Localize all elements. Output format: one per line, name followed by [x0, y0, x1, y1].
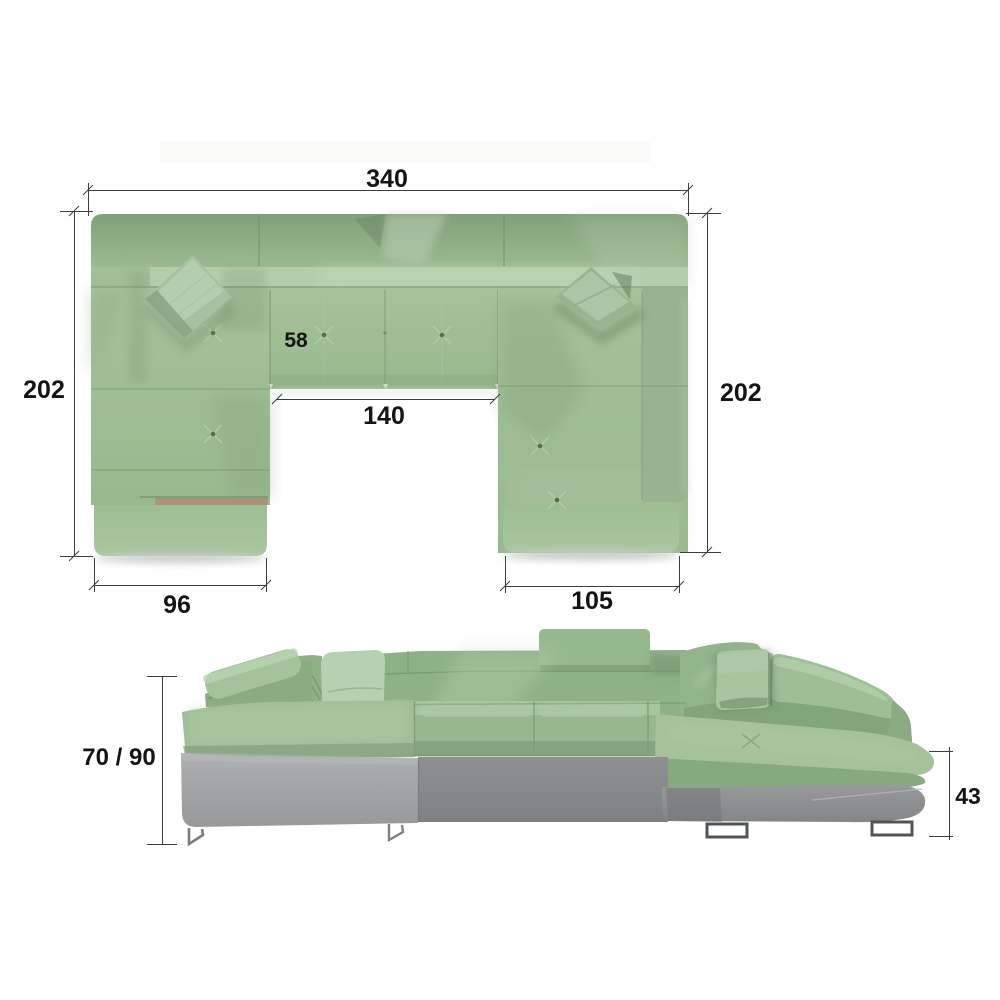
svg-text:140: 140	[363, 402, 405, 430]
svg-text:202: 202	[23, 376, 65, 404]
svg-text:96: 96	[163, 591, 191, 619]
svg-text:43: 43	[955, 783, 981, 809]
svg-text:202: 202	[720, 379, 762, 407]
svg-text:70 / 90: 70 / 90	[82, 744, 155, 771]
svg-text:58: 58	[284, 329, 308, 352]
svg-text:340: 340	[366, 165, 408, 193]
svg-text:105: 105	[571, 587, 613, 615]
